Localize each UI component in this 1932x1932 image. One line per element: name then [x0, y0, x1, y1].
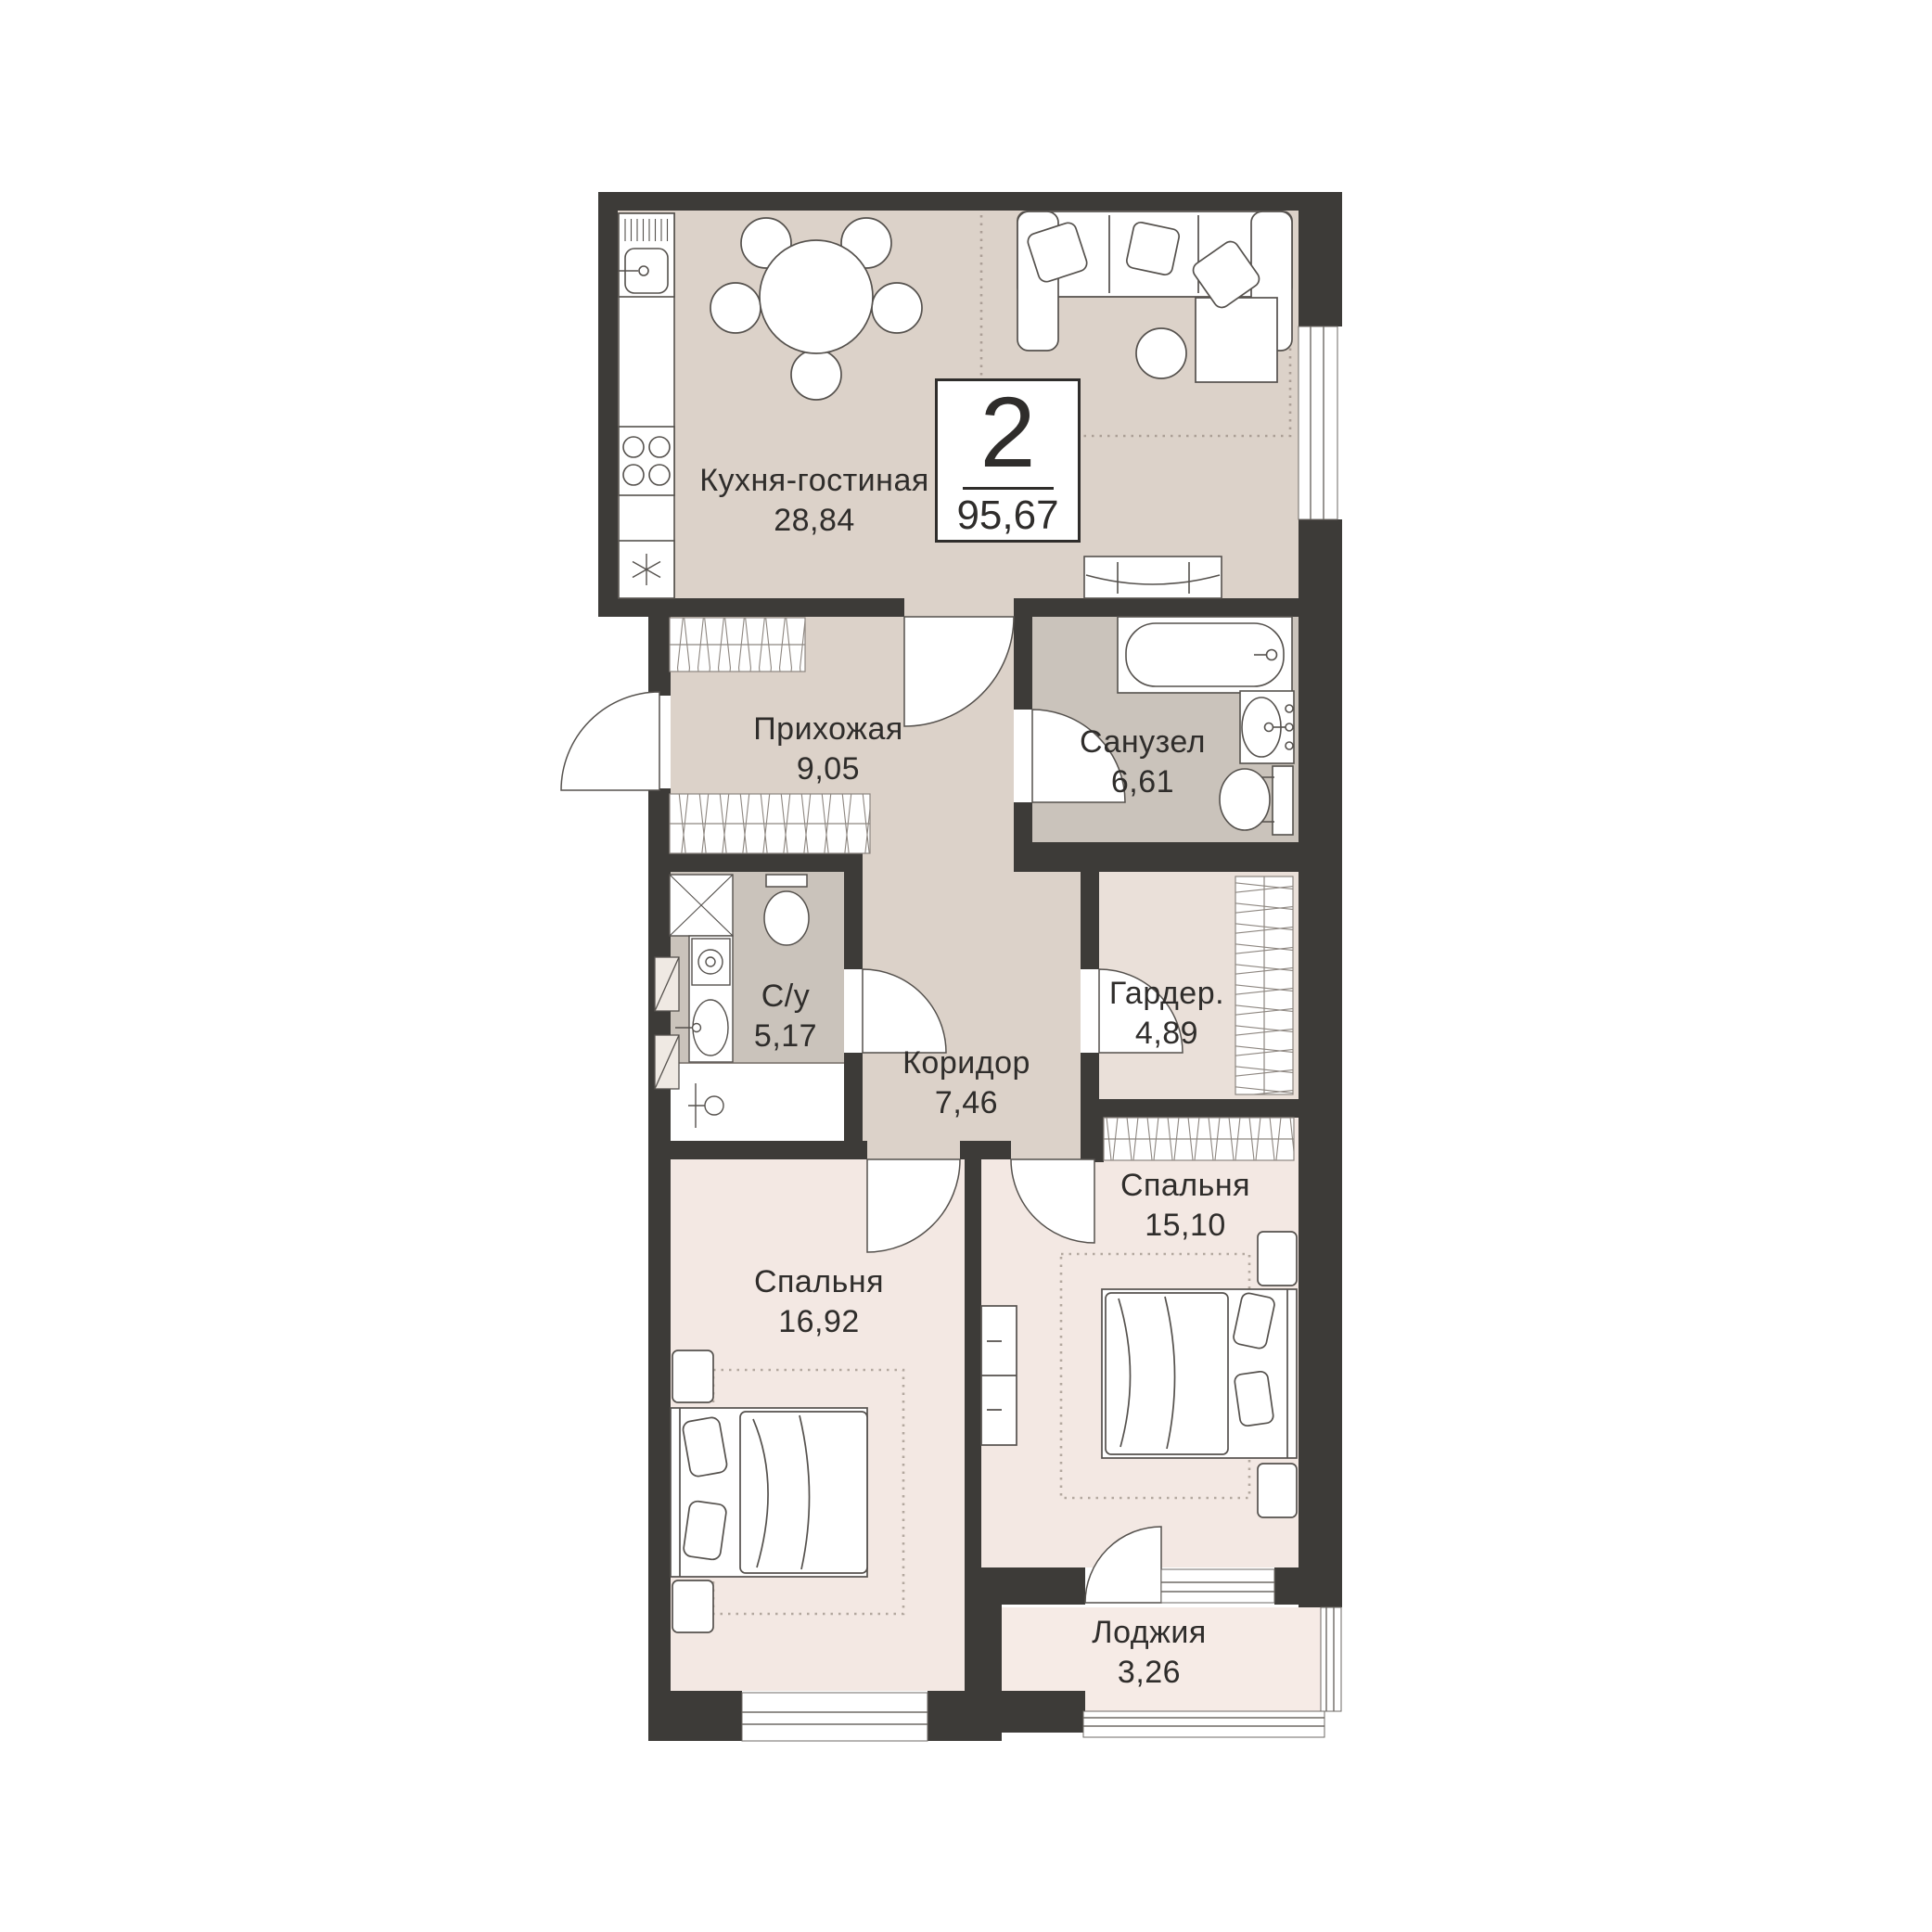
nightstand-icon	[672, 1580, 713, 1632]
kitchen-counter-icon	[618, 213, 674, 598]
room-label-wc: С/у 5,17	[754, 977, 817, 1056]
chair-icon	[872, 283, 922, 333]
chair-icon	[791, 350, 841, 400]
room-label-corridor: Коридор 7,46	[902, 1043, 1030, 1123]
apartment-badge: 2 95,67	[935, 378, 1081, 543]
plan-detail-layer	[0, 0, 1932, 1932]
washbasin-icon	[1240, 691, 1294, 763]
washbasin-icon	[675, 1000, 728, 1056]
wc-door-arc	[863, 969, 946, 1053]
vent-shaft-icon	[655, 957, 679, 1089]
bed-icon	[981, 1232, 1297, 1517]
bedroom-1-door-arc	[1011, 1159, 1094, 1243]
toilet-icon	[764, 875, 809, 945]
ottoman-icon	[1196, 298, 1277, 382]
room-label-bathroom: Санузел 6,61	[1080, 723, 1206, 802]
kitchen-sink-icon	[618, 213, 674, 297]
total-area: 95,67	[956, 495, 1058, 536]
nightstand-icon	[672, 1350, 713, 1402]
coffee-table-icon	[1136, 328, 1186, 378]
kitchen-passage-arc	[904, 617, 1014, 726]
floor-plan: 2 95,67 Кухня-гостиная 28,84 Прихожая 9,…	[0, 0, 1932, 1932]
dining-table-icon	[710, 218, 922, 400]
room-label-hallway: Прихожая 9,05	[753, 710, 903, 789]
bathtub-icon	[1118, 617, 1292, 693]
rooms-count: 2	[979, 385, 1035, 480]
nightstand-icon	[1258, 1464, 1297, 1517]
entrance-door-arc	[561, 692, 659, 790]
dresser-icon	[981, 1306, 1017, 1445]
toilet-icon	[1220, 766, 1293, 835]
room-label-kitchen-living: Кухня-гостиная 28,84	[698, 461, 930, 541]
wardrobe-hatch	[1235, 876, 1293, 1094]
badge-divider	[963, 487, 1054, 490]
wardrobe-hatch	[1104, 1118, 1294, 1160]
towel-rail-icon	[688, 1083, 723, 1128]
chair-icon	[710, 283, 761, 333]
bed-icon	[671, 1350, 867, 1632]
room-label-bedroom-1: Спальня 15,10	[1120, 1166, 1250, 1246]
sofa-icon	[1017, 211, 1292, 382]
room-label-bedroom-2: Спальня 16,92	[754, 1262, 884, 1342]
room-label-wardrobe: Гардер. 4,89	[1109, 974, 1224, 1054]
stove-icon	[619, 427, 674, 495]
loggia-door-arc	[1085, 1527, 1161, 1603]
nightstand-icon	[1258, 1232, 1297, 1286]
fridge-icon	[619, 541, 674, 598]
bedroom-2-door-arc	[867, 1159, 960, 1252]
tv-stand-icon	[1084, 557, 1222, 598]
room-label-loggia: Лоджия 3,26	[1092, 1613, 1206, 1693]
shower-tray-icon	[670, 875, 733, 936]
